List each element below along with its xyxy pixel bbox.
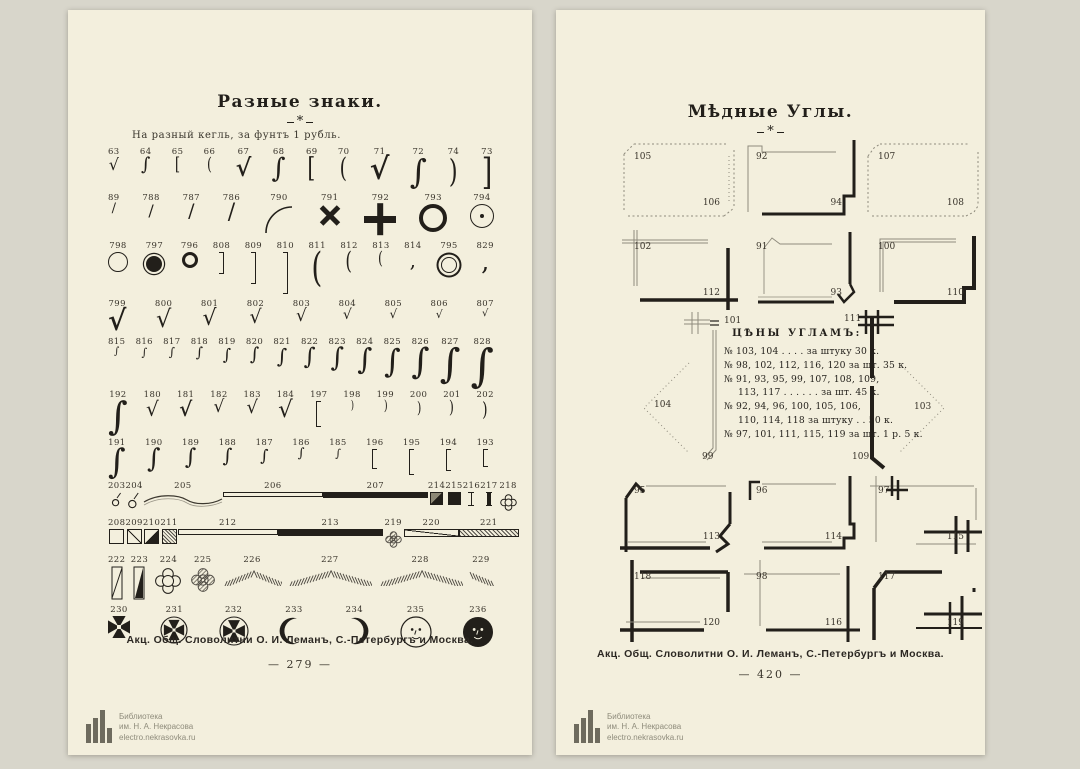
specimen-glyph: ∫ — [250, 348, 259, 363]
corner-number: 117 — [878, 572, 895, 582]
specimen-item: 792 — [364, 193, 396, 236]
specimen-glyph: √ — [108, 310, 126, 333]
specimen-glyph: ∫ — [411, 348, 429, 377]
specimen-number: 797 — [146, 241, 163, 251]
corner-number: 98 — [756, 572, 767, 582]
specimen-item: 67√ — [236, 147, 252, 178]
specimen-item: 65[ — [172, 147, 184, 173]
specimen-item: 183√ — [244, 390, 261, 416]
corner-frame-art — [740, 558, 862, 642]
specimen-number: 226 — [243, 555, 260, 565]
specimen-glyph: ∫ — [141, 348, 147, 357]
specimen-glyph: √ — [236, 158, 252, 178]
corner-frame: 117119 — [862, 558, 984, 642]
specimen-glyph: ∫ — [141, 158, 150, 173]
specimen-item: 225 — [189, 555, 217, 594]
specimen-number: 197 — [310, 390, 327, 400]
specimen-item: 803√ — [293, 299, 310, 324]
specimen-glyph — [109, 529, 124, 544]
ornament-dash — [777, 132, 784, 133]
specimen-item: 213 — [278, 518, 383, 536]
corner-number: 91 — [756, 242, 767, 252]
title-ornament: * — [556, 127, 985, 137]
price-lines: № 103, 104 . . . . за штуку 30 к.№ 98, 1… — [724, 345, 870, 442]
specimen-number: 219 — [385, 518, 402, 528]
ornament-dash — [287, 122, 294, 123]
specimen-number: 220 — [423, 518, 440, 528]
corner-number: 96 — [756, 486, 767, 496]
specimen-row: 192∫180√181√182√183√184√197198)199)200)2… — [108, 390, 494, 432]
specimen-glyph — [446, 449, 451, 471]
left-page-title: Разные знаки. — [68, 92, 532, 112]
specimen-number: 215 — [445, 481, 462, 491]
specimen-glyph — [132, 566, 146, 600]
specimen-item: 793 — [419, 193, 447, 232]
watermark-library: Библиотека — [119, 712, 163, 721]
specimen-glyph: √ — [278, 401, 293, 420]
specimen-glyph: ( — [312, 252, 323, 285]
specimen-glyph — [287, 566, 372, 586]
corner-frame-art — [618, 228, 740, 312]
corner-frame-art — [740, 228, 862, 312]
specimen-glyph — [383, 529, 404, 550]
corner-frame: 9294 — [740, 138, 862, 222]
corner-number: 118 — [634, 572, 651, 582]
specimen-item: 72∫ — [410, 147, 427, 185]
specimen-number: 206 — [264, 481, 281, 491]
specimen-number: 810 — [277, 241, 294, 251]
specimen-item: 799√ — [108, 299, 126, 333]
specimen-glyph: ∫ — [410, 158, 427, 185]
specimen-glyph: √ — [146, 401, 159, 417]
specimen-item: 211 — [160, 518, 177, 544]
specimen-glyph — [144, 529, 159, 544]
specimen-glyph — [409, 449, 414, 475]
specimen-item: 794 — [470, 193, 494, 228]
specimen-number: 791 — [321, 193, 338, 203]
right-page: Мѣдные Углы. * 1051069294107108102112919… — [556, 10, 985, 755]
specimen-item: 805√ — [385, 299, 402, 320]
specimen-glyph: ] — [482, 158, 493, 188]
specimen-item: 798 — [108, 241, 128, 272]
corner-number-103: 103 — [914, 402, 931, 412]
specimen-glyph: √ — [203, 310, 217, 328]
specimen-glyph — [316, 401, 321, 427]
specimen-item: 198) — [343, 390, 360, 411]
specimen-item: 203 — [108, 481, 125, 508]
specimen-item: 196 — [366, 438, 383, 469]
specimen-item: 218 — [498, 481, 519, 513]
specimen-item: 827∫ — [440, 337, 461, 381]
corner-number: 106 — [703, 198, 720, 208]
specimen-item: 791 — [318, 193, 342, 228]
specimen-item: 823∫ — [329, 337, 346, 369]
specimen-glyph — [146, 256, 162, 272]
specimen-number: 222 — [108, 555, 125, 565]
corner-number: 97 — [878, 486, 889, 496]
specimen-number: 209 — [125, 518, 142, 528]
specimen-number: 196 — [366, 438, 383, 448]
specimen-glyph — [466, 492, 476, 506]
specimen-item: 187∫ — [256, 438, 273, 462]
specimen-item: 787/ — [183, 193, 200, 220]
specimen-glyph — [162, 529, 177, 544]
specimen-glyph: ∫ — [169, 348, 175, 358]
specimen-item: 210 — [143, 518, 160, 544]
corner-number-109: 109 — [852, 452, 869, 462]
specimen-glyph — [111, 492, 123, 508]
specimen-item: 822∫ — [301, 337, 318, 367]
specimen-glyph: ∫ — [471, 348, 494, 385]
specimen-number: 229 — [472, 555, 489, 565]
specimen-glyph: ∫ — [304, 348, 316, 367]
specimen-item: 208 — [108, 518, 125, 544]
corner-number: 107 — [878, 152, 895, 162]
specimen-row: 89/788/787/786/790791792793794 — [108, 193, 494, 236]
corner-number: 114 — [825, 532, 842, 542]
specimen-item: 202) — [476, 390, 493, 417]
specimen-item: 808 — [213, 241, 230, 274]
price-box-title: ЦѢНЫ УГЛАМЪ: — [724, 328, 870, 339]
specimen-item: 209 — [125, 518, 142, 544]
specimen-item: 828∫ — [471, 337, 494, 385]
corner-number-101: 101 — [724, 316, 741, 326]
specimen-item: 207 — [323, 481, 428, 498]
watermark-text: Библиотека им. Н. А. Некрасова electro.n… — [607, 712, 683, 743]
specimen-grid: 63√64∫65[66(67√68∫69[70(71√72∫74)73]89/7… — [108, 147, 494, 653]
specimen-glyph — [364, 204, 396, 236]
specimen-number: 233 — [285, 605, 302, 615]
corner-frame: 118120 — [618, 558, 740, 642]
specimen-item: 223 — [131, 555, 148, 600]
corner-frame-row: 11812098116117119 — [618, 558, 950, 642]
specimen-glyph: / — [228, 204, 235, 222]
corner-number: 95 — [634, 486, 645, 496]
specimen-number: 808 — [213, 241, 230, 251]
specimen-item: 188∫ — [219, 438, 236, 465]
specimen-glyph — [441, 257, 457, 273]
specimen-glyph — [222, 566, 282, 586]
specimen-number: 236 — [469, 605, 486, 615]
specimen-row: 63√64∫65[66(67√68∫69[70(71√72∫74)73] — [108, 147, 494, 188]
corner-number: 119 — [947, 618, 964, 628]
specimen-item: 192∫ — [108, 390, 128, 432]
specimen-item: 224 — [153, 555, 183, 596]
specimen-glyph — [378, 566, 463, 586]
specimen-glyph: √ — [214, 401, 225, 415]
specimen-glyph — [143, 492, 223, 507]
specimen-item: 180√ — [144, 390, 161, 417]
specimen-item: 229 — [468, 555, 494, 586]
specimen-glyph: ∫ — [272, 158, 286, 180]
specimen-glyph — [283, 252, 288, 294]
watermark-url: electro.nekrasovka.ru — [607, 733, 683, 742]
specimen-glyph: / — [148, 204, 153, 217]
specimen-glyph: ∫ — [335, 449, 341, 458]
ornament-dash — [306, 122, 313, 123]
specimen-glyph: ∫ — [108, 401, 128, 432]
specimen-item: 214 — [428, 481, 445, 505]
specimen-glyph: √ — [343, 310, 352, 321]
specimen-number: 217 — [480, 481, 497, 491]
specimen-glyph: ( — [379, 252, 384, 267]
specimen-item: 802√ — [247, 299, 264, 326]
specimen-item: 215 — [445, 481, 462, 505]
watermark-logo-icon — [86, 710, 112, 743]
specimen-item: 814, — [404, 241, 421, 268]
specimen-glyph: √ — [389, 310, 397, 320]
specimen-item: 195 — [403, 438, 420, 475]
specimen-glyph: ( — [340, 158, 347, 180]
specimen-number: 193 — [477, 438, 494, 448]
watermark-logo-icon — [574, 710, 600, 743]
specimen-item: 199) — [377, 390, 394, 412]
specimen-item: 201) — [443, 390, 460, 416]
corner-frame: 107108 — [862, 138, 984, 222]
specimen-glyph: ∫ — [185, 449, 196, 467]
specimen-glyph: ( — [346, 252, 353, 272]
specimen-number: 223 — [131, 555, 148, 565]
right-page-number: — 420 — — [556, 668, 985, 681]
corner-number: 102 — [634, 242, 651, 252]
specimen-item: 227 — [287, 555, 372, 586]
specimen-row: 798797796808809810811(812(813(814,795829… — [108, 241, 494, 294]
watermark-url: electro.nekrasovka.ru — [119, 733, 195, 742]
specimen-glyph — [430, 492, 443, 505]
corner-number-111: 111 — [844, 314, 861, 324]
specimen-glyph: [ — [175, 158, 180, 173]
specimen-glyph: ∫ — [223, 348, 231, 361]
specimen-glyph: √ — [246, 401, 257, 416]
specimen-glyph — [108, 252, 128, 272]
corner-number: 108 — [947, 198, 964, 208]
specimen-number: 195 — [403, 438, 420, 448]
specimen-number: 224 — [160, 555, 177, 565]
specimen-item: 809 — [245, 241, 262, 284]
watermark-name: им. Н. А. Некрасова — [607, 722, 681, 731]
specimen-glyph: ) — [482, 401, 487, 417]
price-line: № 98, 102, 112, 116, 120 за шт. 35 к. — [724, 359, 870, 373]
specimen-number: 210 — [143, 518, 160, 528]
specimen-number: 793 — [424, 193, 441, 203]
specimen-glyph: ∫ — [357, 348, 372, 372]
corner-frame: 96114 — [740, 472, 862, 556]
corner-number: 120 — [703, 618, 720, 628]
specimen-item: 826∫ — [411, 337, 429, 377]
specimen-item: 811( — [308, 241, 325, 285]
specimen-number: 235 — [407, 605, 424, 615]
specimen-number: 231 — [166, 605, 183, 615]
specimen-glyph — [127, 529, 142, 544]
corner-frame-art — [618, 558, 740, 642]
specimen-item: 200) — [410, 390, 427, 414]
specimen-glyph: ∫ — [114, 348, 119, 356]
specimen-item: 810 — [277, 241, 294, 294]
specimen-glyph — [110, 566, 124, 600]
specimen-glyph — [189, 566, 217, 594]
corner-frame-art — [740, 472, 862, 556]
specimen-item: 216 — [463, 481, 480, 506]
specimen-item: 206 — [223, 481, 323, 497]
specimen-item: 816∫ — [136, 337, 153, 357]
specimen-number: 216 — [463, 481, 480, 491]
specimen-item: 191∫ — [108, 438, 126, 477]
specimen-glyph — [278, 529, 383, 536]
specimen-item: 63√ — [108, 147, 120, 171]
specimen-number: 795 — [440, 241, 457, 251]
corner-frame-art — [862, 138, 984, 222]
specimen-glyph — [484, 492, 494, 506]
ornament-dash — [757, 132, 764, 133]
corner-frame: 105106 — [618, 138, 740, 222]
specimen-glyph — [404, 529, 459, 537]
specimen-item: 786/ — [223, 193, 240, 222]
specimen-glyph — [219, 252, 224, 274]
corner-frame: 102112 — [618, 228, 740, 312]
specimen-glyph: ) — [449, 158, 458, 184]
foundry-caption-right: Акц. Общ. Словолитни О. И. Леманъ, С.-Пе… — [556, 648, 985, 660]
specimen-item: 190∫ — [145, 438, 162, 470]
specimen-row: 191∫190∫189∫188∫187∫186∫185∫196195194193 — [108, 438, 494, 477]
specimen-item: 212 — [178, 518, 278, 535]
specimen-item: 821∫ — [273, 337, 290, 364]
specimen-number: 218 — [499, 481, 516, 491]
specimen-glyph: ∫ — [440, 348, 461, 381]
specimen-glyph: ∫ — [260, 449, 268, 462]
specimen-glyph — [323, 492, 428, 498]
corner-frame: 95113 — [618, 472, 740, 556]
left-page: Разные знаки. * На разный кегль, за фунт… — [68, 10, 532, 755]
corner-frame-art — [618, 472, 740, 556]
specimen-number: 207 — [367, 481, 384, 491]
specimen-glyph — [263, 204, 295, 236]
specimen-item: 185∫ — [329, 438, 346, 458]
specimen-glyph: ∫ — [196, 348, 203, 359]
price-line: № 92, 94, 96, 100, 105, 106, — [724, 400, 870, 414]
foundry-caption-left: Акц. Общ. Словолитни О. И. Леманъ, С.-Пе… — [68, 634, 532, 646]
specimen-glyph: ∫ — [330, 348, 344, 369]
specimen-row: 208209210211212213219220221 — [108, 518, 494, 550]
left-page-subtitle: На разный кегль, за фунтъ 1 рубль. — [132, 130, 341, 141]
specimen-item: 66( — [204, 147, 216, 173]
specimen-number: 228 — [411, 555, 428, 565]
library-watermark: Библиотека им. Н. А. Некрасова electro.n… — [574, 710, 683, 743]
specimen-glyph: √ — [249, 310, 261, 326]
specimen-glyph — [459, 529, 519, 537]
specimen-glyph — [419, 204, 447, 232]
specimen-item: 182√ — [210, 390, 227, 415]
specimen-item: 804√ — [339, 299, 356, 321]
library-watermark: Библиотека им. Н. А. Некрасова electro.n… — [86, 710, 195, 743]
specimen-item: 71√ — [370, 147, 390, 183]
specimen-number: 232 — [225, 605, 242, 615]
specimen-number: 194 — [440, 438, 457, 448]
specimen-item: 204 — [125, 481, 142, 510]
specimen-number: 212 — [219, 518, 236, 528]
specimen-glyph — [251, 252, 256, 284]
specimen-item: 817∫ — [163, 337, 180, 358]
specimen-glyph: ∫ — [223, 449, 233, 465]
specimen-number: 792 — [372, 193, 389, 203]
specimen-item: 68∫ — [272, 147, 286, 180]
specimen-number: 211 — [160, 518, 177, 528]
specimen-number: 213 — [322, 518, 339, 528]
specimen-row: 799√800√801√802√803√804√805√806√807√ — [108, 299, 494, 333]
specimen-glyph — [223, 492, 323, 497]
specimen-item: 829, — [476, 241, 493, 273]
specimen-glyph: ) — [449, 401, 454, 416]
specimen-item: 820∫ — [246, 337, 263, 363]
ornament-star-icon: * — [297, 117, 304, 127]
specimen-glyph: √ — [370, 158, 390, 183]
price-line: № 103, 104 . . . . за штуку 30 к. — [724, 345, 870, 359]
corner-number-104: 104 — [654, 400, 671, 410]
specimen-number: 230 — [110, 605, 127, 615]
price-line: № 97, 101, 111, 115, 119 за шт. 1 р. 5 к… — [724, 428, 870, 442]
specimen-item: 819∫ — [218, 337, 235, 361]
specimen-item: 181√ — [177, 390, 194, 417]
specimen-item: 226 — [222, 555, 282, 586]
corner-frame-row: 1051069294107108 — [618, 138, 950, 222]
specimen-glyph: ) — [416, 401, 420, 414]
corner-number: 93 — [831, 288, 842, 298]
price-box: ЦѢНЫ УГЛАМЪ: № 103, 104 . . . . за штуку… — [724, 328, 870, 442]
specimen-glyph: √ — [109, 158, 119, 171]
specimen-row: 203204205206207214215216217218 — [108, 481, 494, 513]
specimen-item: 800√ — [155, 299, 172, 330]
specimen-item: 217 — [480, 481, 497, 506]
specimen-number: 790 — [270, 193, 287, 203]
specimen-item: 184√ — [277, 390, 294, 420]
specimen-item: 790 — [263, 193, 295, 236]
corner-number: 115 — [947, 532, 964, 542]
specimen-item: 812( — [340, 241, 357, 272]
specimen-item: 222 — [108, 555, 125, 600]
specimen-item: 807√ — [476, 299, 493, 318]
corner-number: 116 — [825, 618, 842, 628]
watermark-text: Библиотека им. Н. А. Некрасова electro.n… — [119, 712, 195, 743]
corner-frame-art — [740, 138, 862, 222]
specimen-item: 824∫ — [356, 337, 373, 372]
specimen-item: 228 — [378, 555, 463, 586]
specimen-glyph: ∫ — [384, 348, 401, 374]
specimen-glyph: √ — [296, 310, 307, 324]
specimen-item: 73] — [480, 147, 494, 188]
corner-number: 105 — [634, 152, 651, 162]
specimen-item: 69[ — [306, 147, 318, 180]
specimen-glyph — [470, 204, 494, 228]
corner-number: 94 — [831, 198, 842, 208]
corner-frame-row: 1021129193100110 — [618, 228, 950, 312]
specimen-number: 794 — [473, 193, 490, 203]
specimen-item: 818∫ — [191, 337, 208, 359]
specimen-number: 204 — [125, 481, 142, 491]
specimen-item: 74) — [447, 147, 459, 184]
specimen-row: 815∫816∫817∫818∫819∫820∫821∫822∫823∫824∫… — [108, 337, 494, 385]
specimen-glyph: [ — [308, 158, 316, 180]
specimen-item: 219 — [383, 518, 404, 550]
price-line: № 91, 93, 95, 99, 107, 108, 109, — [724, 373, 870, 387]
corner-frame-art — [862, 472, 984, 556]
specimen-item: 806√ — [431, 299, 448, 319]
specimen-number: 214 — [428, 481, 445, 491]
corner-number: 112 — [703, 288, 720, 298]
corner-number: 100 — [878, 242, 895, 252]
specimen-glyph — [178, 529, 278, 535]
corner-frame: 98116 — [740, 558, 862, 642]
specimen-glyph: ∫ — [277, 348, 287, 364]
corner-frame-art — [618, 138, 740, 222]
